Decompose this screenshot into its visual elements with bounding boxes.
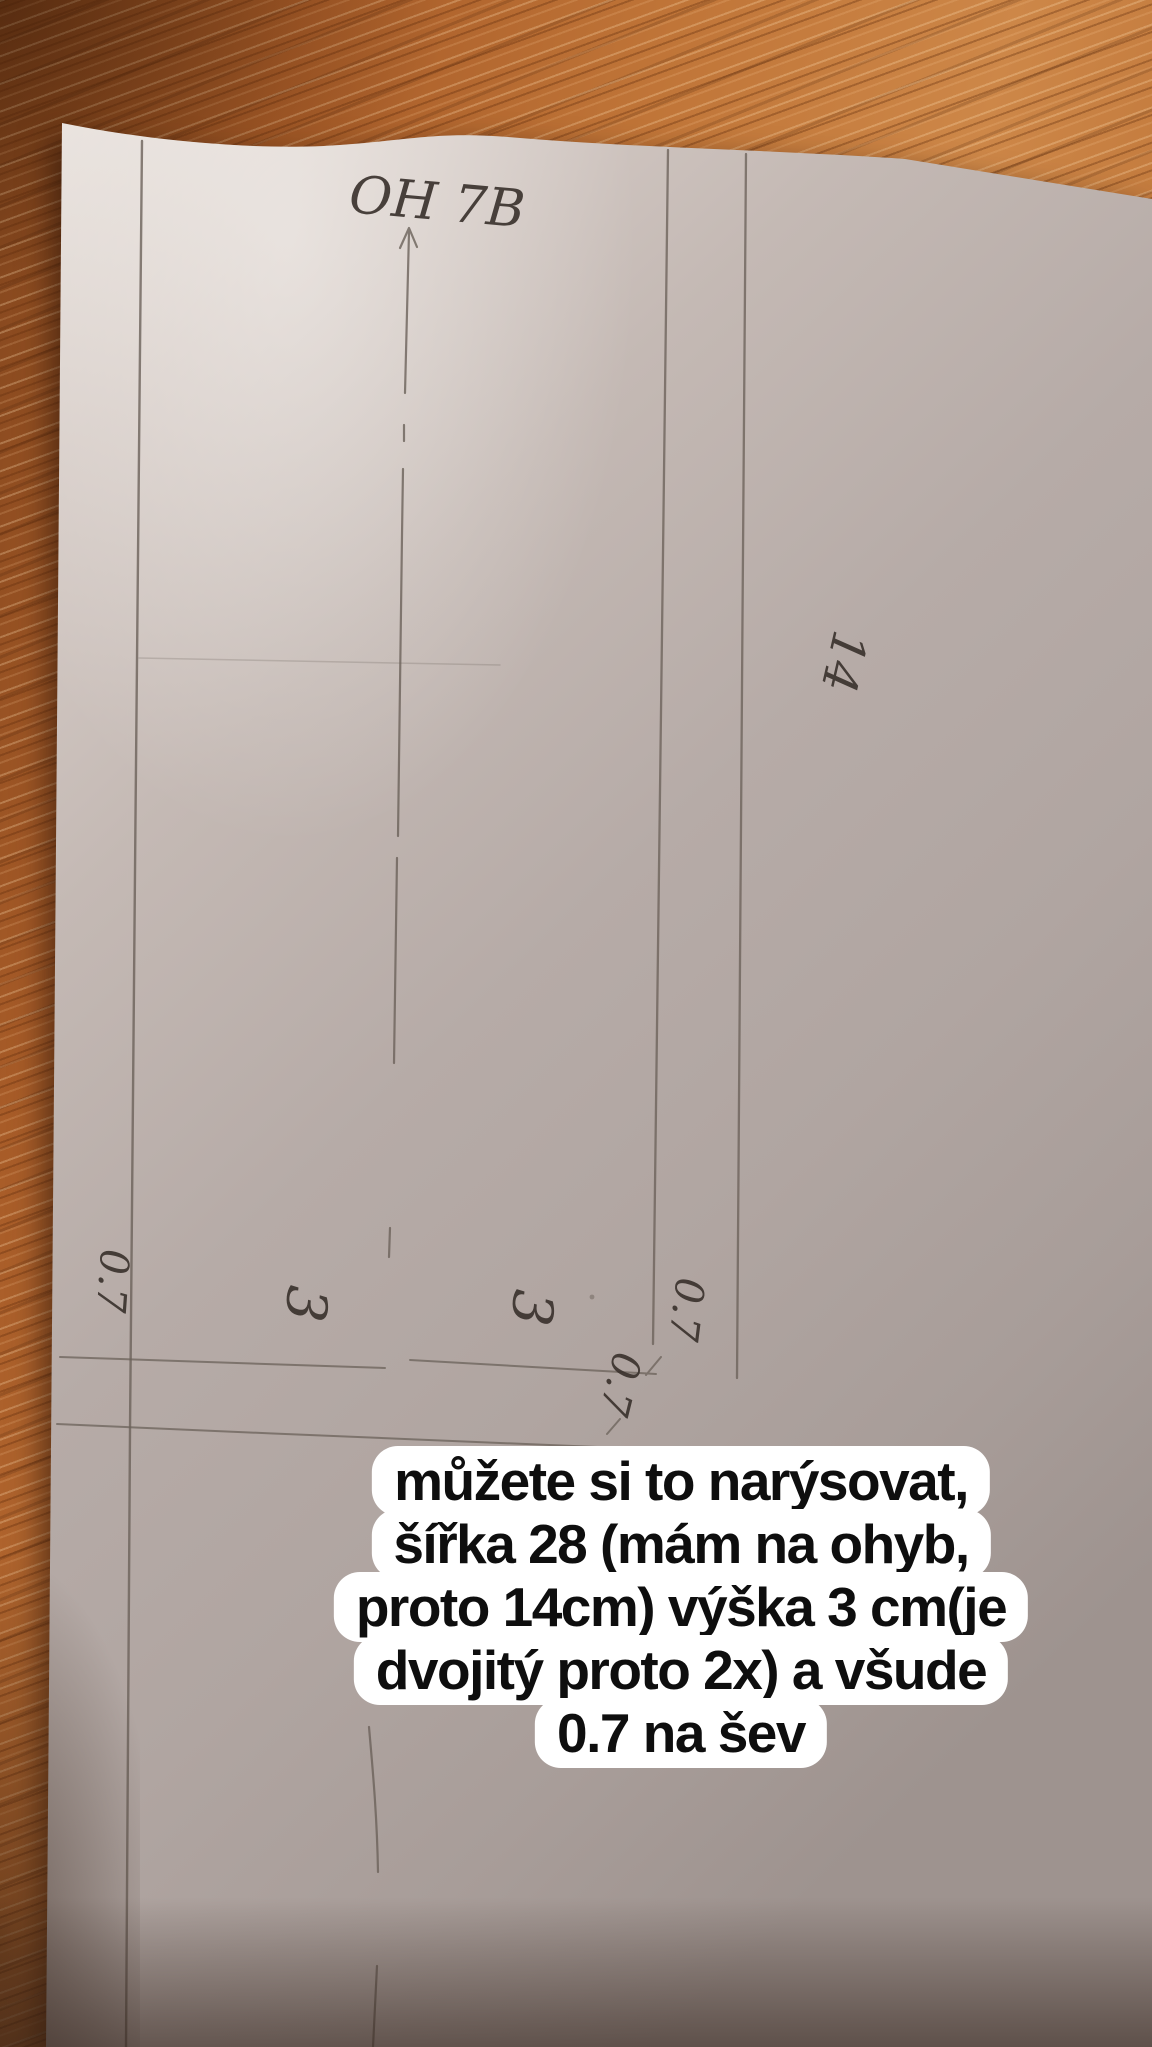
label-seam-right: 0.7 <box>659 1275 712 1344</box>
label-3-mid: 3 <box>497 1287 565 1329</box>
caption-line-1: můžete si to narýsovat, <box>372 1446 990 1516</box>
caption-line-4: dvojitý proto 2x) a všude <box>354 1635 1008 1705</box>
caption-line-2: šířka 28 (mám na ohyb, <box>371 1509 990 1579</box>
pencil-dot <box>590 1295 595 1300</box>
label-3-left: 3 <box>271 1283 339 1325</box>
caption-line-5: 0.7 na šev <box>535 1698 827 1768</box>
caption-overlay: můžete si to narýsovat, šířka 28 (mám na… <box>334 1446 1028 1768</box>
photo-of-sewing-pattern: OH 7B 14 3 3 0.7 0.7 0.7 můžete si to na… <box>0 0 1152 2047</box>
caption-line-3: proto 14cm) výška 3 cm(je <box>334 1572 1028 1642</box>
label-seam-left: 0.7 <box>87 1248 137 1315</box>
